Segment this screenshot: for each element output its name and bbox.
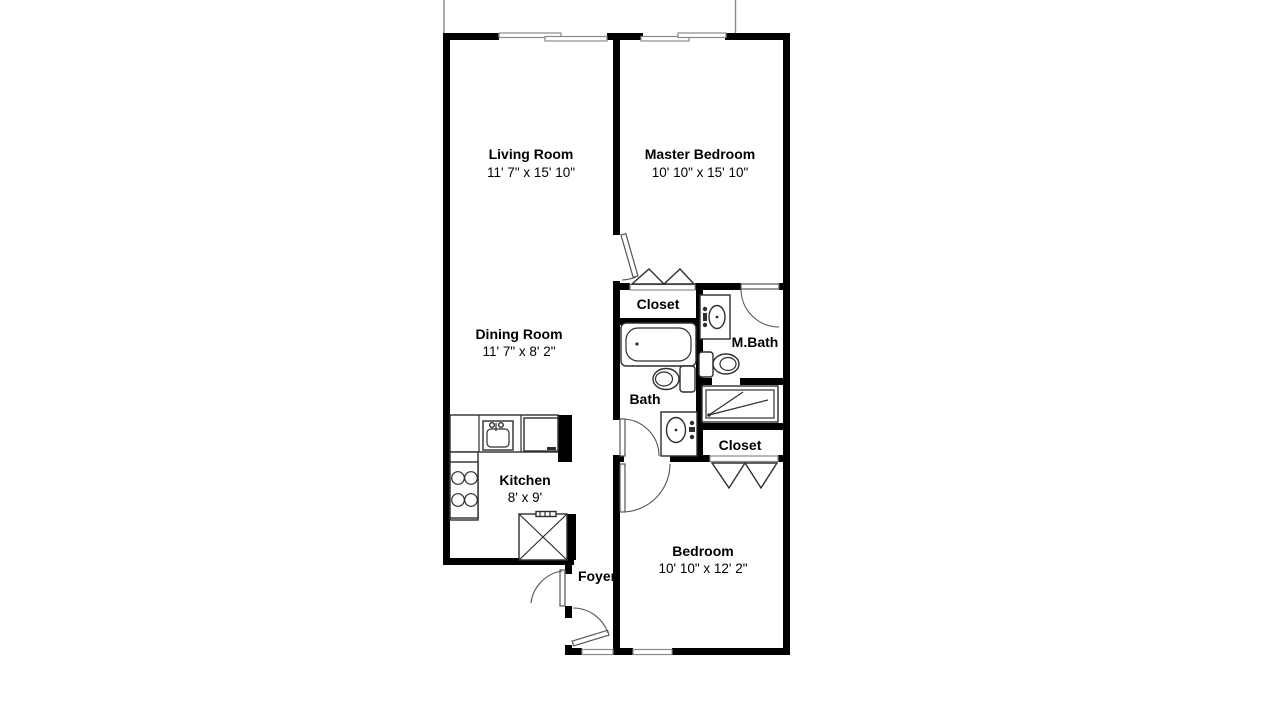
floor-plan-page: Living Room 11' 7" x 15' 10" Master Bedr…: [0, 0, 1280, 720]
bedroom-door: [620, 464, 670, 512]
window-bedroom: [633, 650, 672, 655]
refrigerator: [524, 418, 558, 451]
master-bedroom-label: Master Bedroom: [645, 146, 755, 162]
bedroom-closet-label: Closet: [719, 437, 762, 453]
entry-door-upper: [531, 570, 565, 606]
kitchen-label: Kitchen: [499, 472, 550, 488]
bath-toilet: [653, 366, 695, 392]
shower: [702, 386, 778, 422]
window-foyer: [582, 650, 613, 655]
dining-room-dims: 11' 7" x 8' 2": [482, 344, 555, 359]
master-bedroom-door: [621, 234, 638, 280]
bedroom-dims: 10' 10" x 12' 2": [658, 561, 747, 576]
master-bath-sink-vanity: [700, 295, 730, 339]
master-bedroom-dims: 10' 10" x 15' 10": [652, 165, 749, 180]
appliance-box: [519, 512, 567, 561]
bedroom-label: Bedroom: [672, 543, 733, 559]
sliding-door-master: [641, 33, 726, 41]
master-bath-label: M.Bath: [732, 334, 779, 350]
bathtub: [621, 323, 696, 366]
entry-door-lower: [572, 608, 609, 646]
master-bath-door: [741, 284, 779, 327]
living-room-dims: 11' 7" x 15' 10": [487, 165, 575, 180]
kitchen-dims: 8' x 9': [508, 490, 542, 505]
bifold-doors-bedroom-closet: [710, 456, 778, 488]
hall-closet-label: Closet: [637, 296, 680, 312]
living-room-label: Living Room: [489, 146, 574, 162]
foyer-label: Foyer: [578, 568, 617, 584]
kitchen-sink: [483, 421, 513, 450]
master-bath-toilet: [699, 352, 739, 377]
sliding-door-living: [499, 33, 607, 41]
floor-plan-drawing: Living Room 11' 7" x 15' 10" Master Bedr…: [0, 0, 1280, 720]
dining-room-label: Dining Room: [475, 326, 562, 342]
bath-sink-vanity: [661, 412, 697, 456]
stove: [450, 462, 478, 518]
bifold-doors-hall-closet: [630, 269, 695, 290]
balcony-outline: [444, 0, 736, 34]
bath-door: [620, 419, 659, 456]
bath-label: Bath: [629, 391, 660, 407]
